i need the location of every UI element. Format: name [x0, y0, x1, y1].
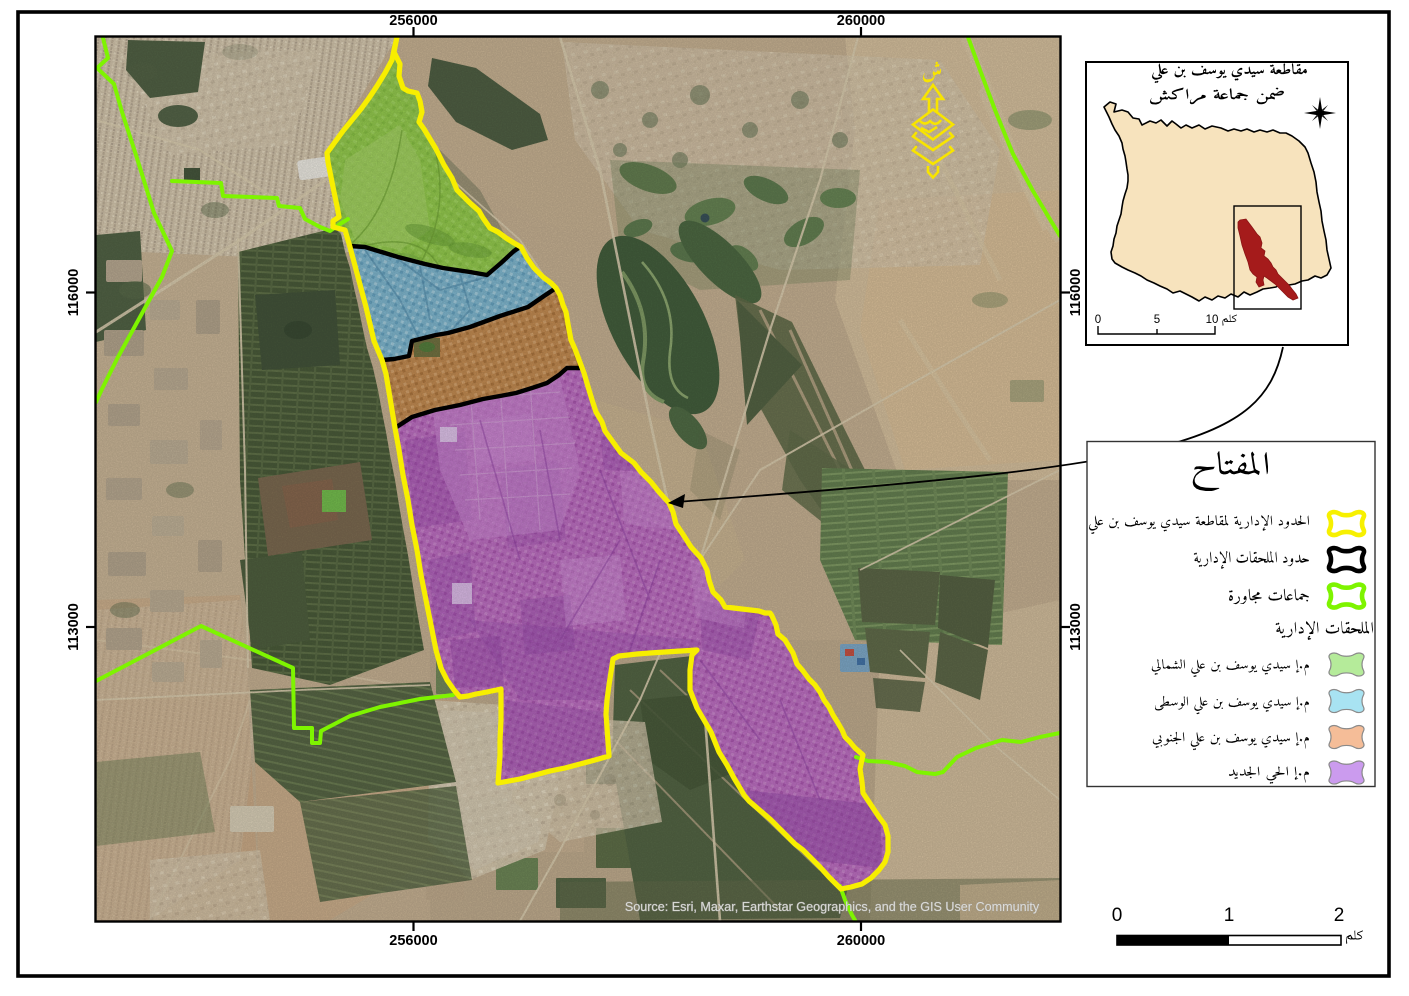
svg-text:1: 1	[1224, 905, 1235, 926]
svg-text:Source: Esri, Maxar, Earthstar: Source: Esri, Maxar, Earthstar Geographi…	[625, 900, 1040, 914]
svg-text:0: 0	[1112, 905, 1123, 926]
svg-text:256000: 256000	[389, 933, 437, 949]
svg-text:260000: 260000	[837, 933, 885, 949]
svg-text:113000: 113000	[1068, 603, 1084, 651]
svg-text:113000: 113000	[66, 603, 82, 651]
svg-text:2: 2	[1334, 905, 1345, 926]
svg-text:116000: 116000	[1068, 269, 1084, 317]
svg-text:5: 5	[1154, 314, 1160, 326]
svg-text:256000: 256000	[389, 13, 437, 29]
svg-text:10: 10	[1206, 314, 1219, 326]
svg-text:116000: 116000	[66, 269, 82, 317]
svg-text:0: 0	[1095, 314, 1101, 326]
svg-text:260000: 260000	[837, 13, 885, 29]
